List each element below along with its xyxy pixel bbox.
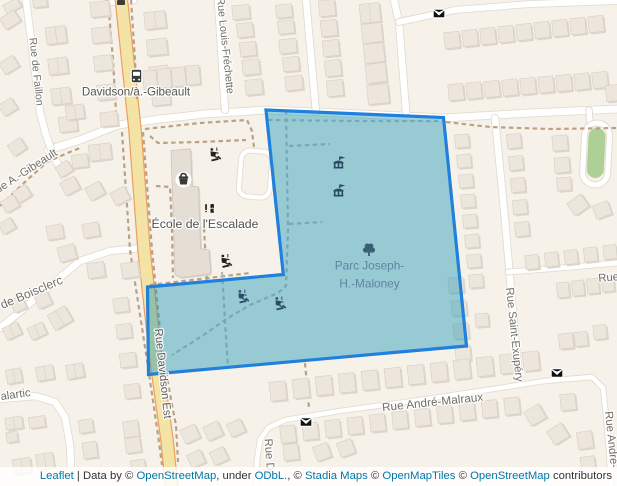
svg-text:Rue: Rue	[598, 271, 617, 285]
svg-text:H.-Maloney: H.-Maloney	[339, 277, 399, 291]
svg-text:Davidson/à.-Gibeault: Davidson/à.-Gibeault	[82, 86, 191, 99]
svg-text:Parc Joseph-: Parc Joseph-	[335, 259, 405, 273]
svg-text:École de l'Escalade: École de l'Escalade	[152, 216, 259, 231]
